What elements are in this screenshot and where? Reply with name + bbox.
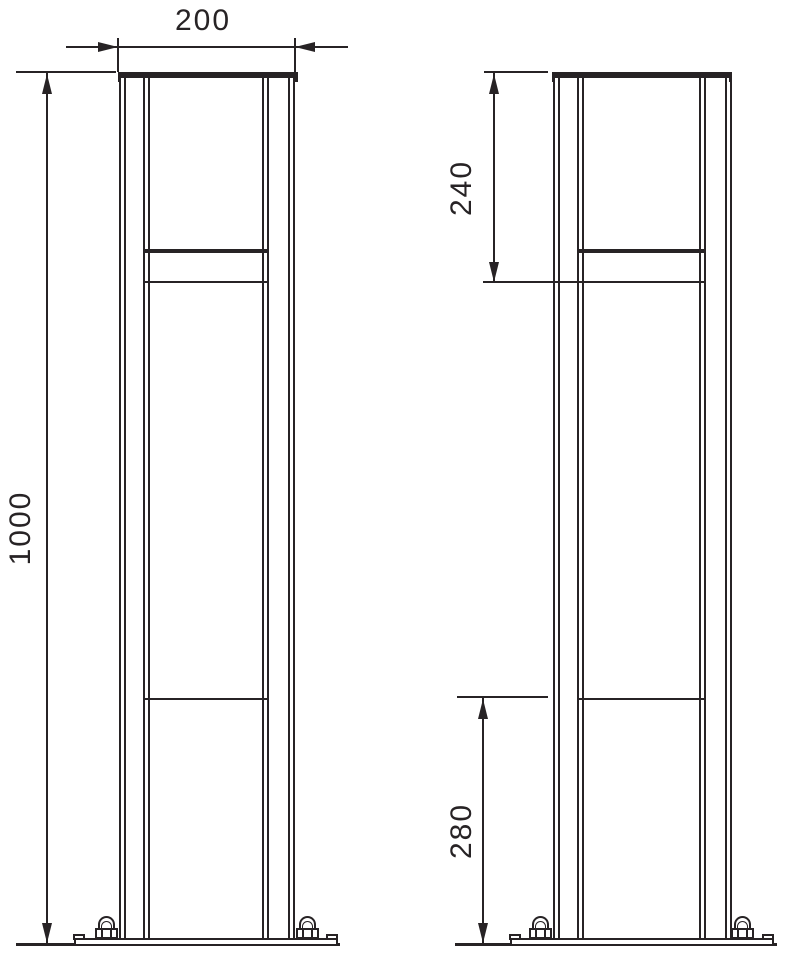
post-rail-inner-left: [577, 78, 584, 939]
base-plate-lug: [73, 934, 85, 940]
anchor-bolt: [529, 916, 552, 939]
arrowhead-up-icon: [42, 74, 52, 94]
dim-label-overall-height: 1000: [6, 468, 36, 588]
arrowhead-down-icon: [478, 923, 488, 943]
bolt-body: [529, 928, 552, 939]
anchor-bolt: [95, 916, 118, 939]
upper-panel-bottom-line: [577, 249, 706, 253]
post-rail-outer-left: [119, 78, 126, 939]
anchor-bolt: [296, 916, 319, 939]
dim-label-lower-section: 280: [447, 771, 477, 891]
post-rail-inner-right: [262, 78, 269, 939]
dimension-line: [482, 698, 484, 943]
bolt-body: [95, 928, 118, 939]
extension-line: [457, 696, 548, 698]
lower-panel-top-line: [143, 698, 269, 700]
post-rail-outer-right: [288, 78, 295, 939]
post-rail-inner-right: [699, 78, 706, 939]
dimension-line: [46, 73, 48, 943]
crossbar-line: [143, 281, 269, 283]
arrowhead-left-icon: [295, 42, 315, 52]
top-cap-end-lip: [295, 78, 298, 82]
arrowhead-up-icon: [478, 699, 488, 719]
base-plate-lug: [326, 934, 338, 940]
arrowhead-down-icon: [489, 262, 499, 282]
upper-panel-bottom-line: [143, 249, 269, 253]
post-rail-outer-left: [553, 78, 560, 939]
dim-label-overall-width: 200: [143, 6, 263, 36]
dimension-line: [493, 73, 495, 283]
dim-label-upper-section: 240: [447, 128, 477, 248]
base-plate-lug: [509, 934, 521, 940]
anchor-bolt: [731, 916, 754, 939]
extension-line: [16, 71, 116, 73]
arrowhead-down-icon: [42, 923, 52, 943]
bolt-body: [731, 928, 754, 939]
bolt-body: [296, 928, 319, 939]
arrowhead-right-icon: [98, 42, 118, 52]
crossbar-line: [577, 281, 706, 283]
arrowhead-up-icon: [489, 74, 499, 94]
lower-panel-top-line: [577, 698, 706, 700]
post-rail-outer-right: [725, 78, 732, 939]
technical-drawing-canvas: 200 1000 240 280: [0, 0, 786, 960]
post-rail-inner-left: [143, 78, 150, 939]
base-plate: [74, 938, 338, 946]
base-plate: [510, 938, 774, 946]
base-plate-lug: [762, 934, 774, 940]
